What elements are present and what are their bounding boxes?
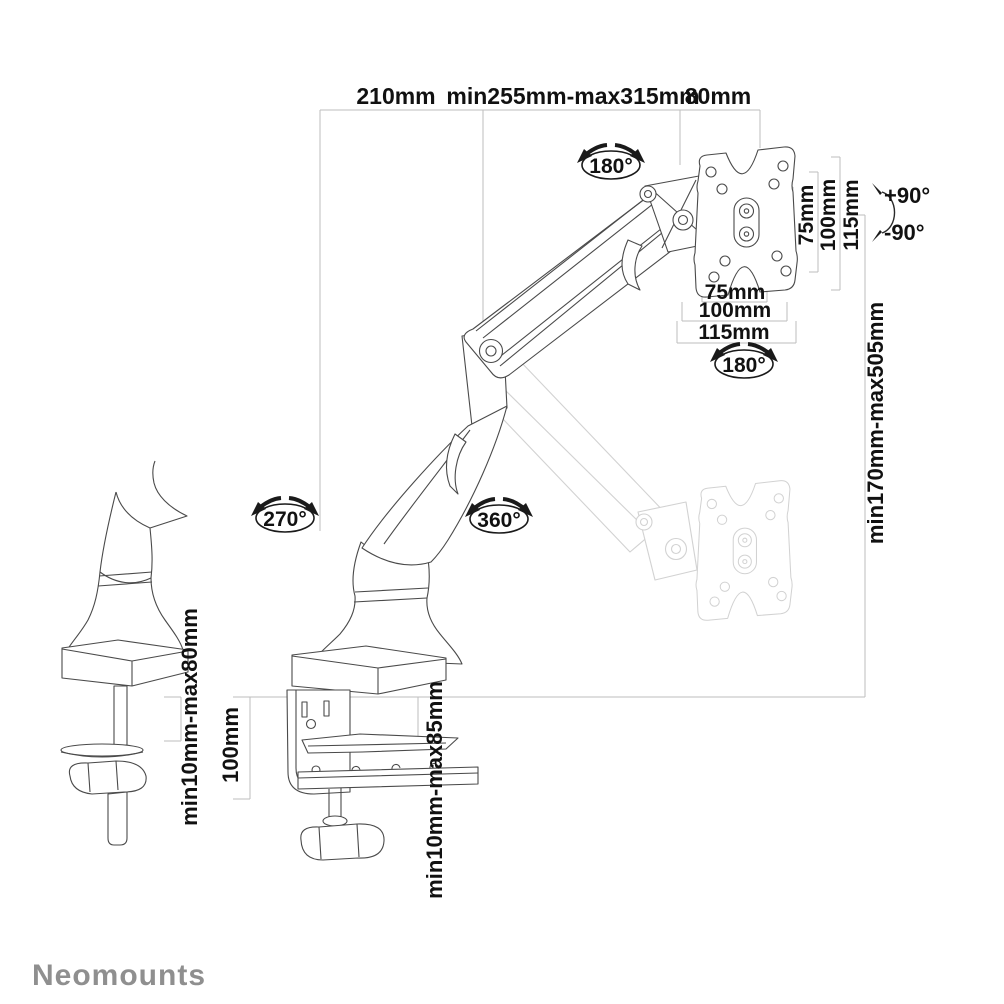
vesa-vertical-115-label: 115mm [840,179,863,250]
height-range-label: min170mm-max505mm [863,302,888,544]
ghost-head-pivot [636,514,652,530]
brand-logo: Neomounts [32,959,206,992]
clamp-height-label: 100mm [218,707,243,783]
base-column [292,542,462,694]
tilt-up-label: +90° [884,183,930,208]
elbow-pivot [480,340,503,363]
clamp-thickness-label: min10mm-max85mm [422,681,447,899]
vesa-plate [694,147,797,297]
grommet-foot [62,640,188,686]
arm-swivel-label: 360° [477,509,520,532]
tilt-indicator: +90° -90° [872,183,930,245]
grommet-thickness-label: min10mm-max80mm [177,608,202,826]
clamp-screw-collar [323,816,347,826]
upper-arm-link [464,176,712,378]
vesa-rotation-label: 180° [722,354,765,377]
vesa-horizontal-100-label: 100mm [699,299,771,322]
grommet-wing-nut [69,761,146,794]
vesa-horizontal-115-label: 115mm [698,321,769,344]
grommet-threaded-rod [114,686,127,745]
vesa-vertical-75-label: 75mm [795,185,818,246]
head-swivel-label: 180° [589,155,632,178]
grommet-base-unit [61,461,188,845]
grommet-neck-outline [100,461,187,578]
vesa-vertical-100-label: 100mm [817,179,840,251]
tilt-down-label: -90° [884,220,925,245]
base-swivel-label: 270° [263,508,306,531]
tilt-arc-arrowheads [872,183,882,242]
tilt-knob [673,210,693,230]
grommet-rod-tip [108,792,127,845]
ghost-arm-lowered-position [480,361,792,620]
head-pivot [640,186,656,202]
top-span-middle-label: min255mm-max315mm [446,83,699,109]
diagram-canvas: 180° 180° 270° 360° +90° -90° 210mm min2… [0,0,1004,1004]
top-span-left-label: 210mm [356,83,435,109]
desk-clamp [287,690,478,860]
ghost-vesa-plate [696,481,792,621]
top-span-right-label: 80mm [685,83,751,109]
ghost-head-clevis [638,502,697,580]
product-dimension-diagram: 180° 180° 270° 360° +90° -90° 210mm min2… [0,0,1004,1004]
forearm-body [362,406,507,565]
ghost-tilt-knob [666,539,687,560]
clamp-t-knob [301,824,384,860]
